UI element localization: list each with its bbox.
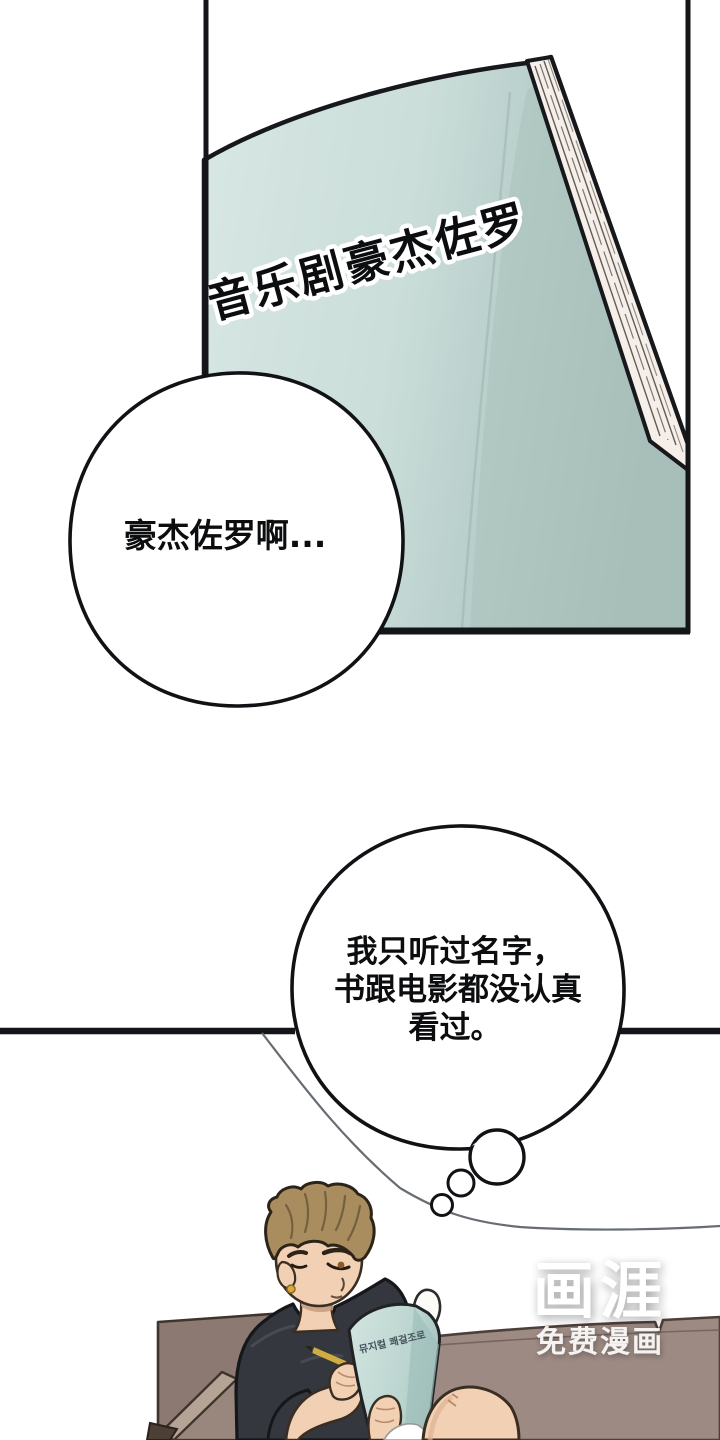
thought-line-1: 我只听过名字， [347,934,564,970]
thought-line-2: 书跟电影都没认真 [334,972,582,1008]
thought-tail-circle-1 [448,1170,474,1196]
watermark-logo: 画涯 [533,1254,667,1327]
watermark-tagline: 免费漫画 [536,1325,664,1360]
earring [287,1285,295,1293]
iris-right [338,1262,345,1269]
watermark: 画涯 免费漫画 [533,1254,667,1360]
manhwa-page: 音乐剧豪杰佐罗 豪杰佐罗啊... [0,0,720,1440]
thought-line-3: 看过。 [409,1010,502,1046]
thought-bubble: 我只听过名字， 书跟电影都没认真 看过。 [292,826,624,1216]
speech-bubble-text: 豪杰佐罗啊... [124,516,327,555]
speech-bubble: 豪杰佐罗啊... [70,373,403,706]
thought-tail-circle-2 [432,1195,453,1216]
manhwa-artwork: 音乐剧豪杰佐罗 豪杰佐罗啊... [0,0,720,1440]
